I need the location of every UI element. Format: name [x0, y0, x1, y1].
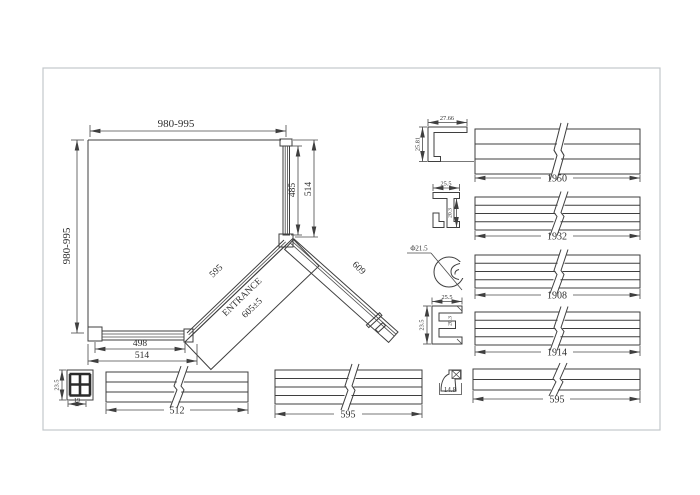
dim-bottom-glass-label: 498: [133, 339, 148, 349]
profile-corner-block-width: 19: [74, 397, 80, 404]
bar-length-label: 1914: [547, 348, 567, 359]
dim-fixed-diagonal-label: 595: [208, 263, 225, 280]
bar-rail-1908: 1908: [475, 250, 640, 302]
bar-length-label: 512: [170, 406, 185, 417]
plan-walls: [88, 140, 281, 328]
return-door-panel: [285, 239, 398, 342]
door-handle: [366, 313, 385, 333]
bar-length-label: 595: [341, 410, 356, 421]
profile-glass-channel-width: 25.5: [440, 181, 451, 188]
dim-top-width: 980-995: [90, 118, 286, 137]
profile-corner-block-height: 23.5: [54, 379, 61, 390]
technical-drawing-page: ENTRANCE 605±5 980-995 980-995: [0, 0, 700, 495]
bar-rail-595-right: 595: [473, 363, 640, 406]
dim-side-glass: 485: [288, 146, 302, 235]
profile-wall-channel: 27.66 25.81: [415, 115, 475, 162]
fixed-diagonal-rail: [187, 240, 287, 337]
dim-left-height-label: 980-995: [61, 227, 73, 264]
bar-length-label: 1950: [547, 174, 567, 185]
profile-wall-channel-width: 27.66: [440, 115, 454, 122]
dim-bottom-total-label: 514: [135, 351, 150, 361]
break-symbol: [550, 123, 568, 180]
profile-frame-extrusion-height: 23.5: [419, 319, 426, 330]
profile-round-tube-diameter: Φ21.5: [410, 245, 428, 253]
profile-glass-channel-depth: 20.3: [448, 208, 454, 218]
dim-side-total-label: 514: [304, 182, 314, 197]
profile-frame-extrusion-width: 25.5: [441, 294, 452, 301]
dim-side-glass-label: 485: [288, 183, 298, 198]
dim-top-width-label: 980-995: [158, 118, 195, 130]
bar-length-label: 595: [550, 395, 565, 406]
bar-length-label: 1932: [547, 232, 567, 243]
plan-view: ENTRANCE 605±5 980-995 980-995: [61, 118, 398, 370]
bar-rail-1950: 1950: [475, 123, 640, 185]
profile-corner-block: 23.5 19: [54, 370, 94, 407]
profile-wall-channel-height: 25.81: [415, 137, 422, 151]
bar-rail-1932: 1932: [475, 192, 640, 243]
profile-seal-bracket: 14.8: [440, 370, 462, 395]
profile-round-tube: Φ21.5: [407, 245, 468, 291]
profile-glass-channel: 25.5 20.3: [433, 181, 460, 228]
dim-door-panel-label: 609: [350, 260, 367, 277]
bar-rail-1914: 1914: [475, 307, 640, 359]
profile-seal-bracket-width: 14.8: [444, 386, 457, 394]
entrance-door-panel: ENTRANCE 605±5: [185, 239, 319, 370]
bar-rail-512: 512: [106, 366, 248, 416]
profile-frame-extrusion-depth: 20.3: [448, 316, 454, 326]
bar-rail-595-bottom: 595: [275, 364, 422, 421]
bar-length-label: 1908: [547, 291, 567, 302]
profile-frame-extrusion: 25.5 23.5 20.3: [419, 294, 463, 344]
dim-left-height: 980-995: [61, 140, 84, 333]
shower-enclosure-drawing: ENTRANCE 605±5 980-995 980-995: [0, 0, 700, 495]
